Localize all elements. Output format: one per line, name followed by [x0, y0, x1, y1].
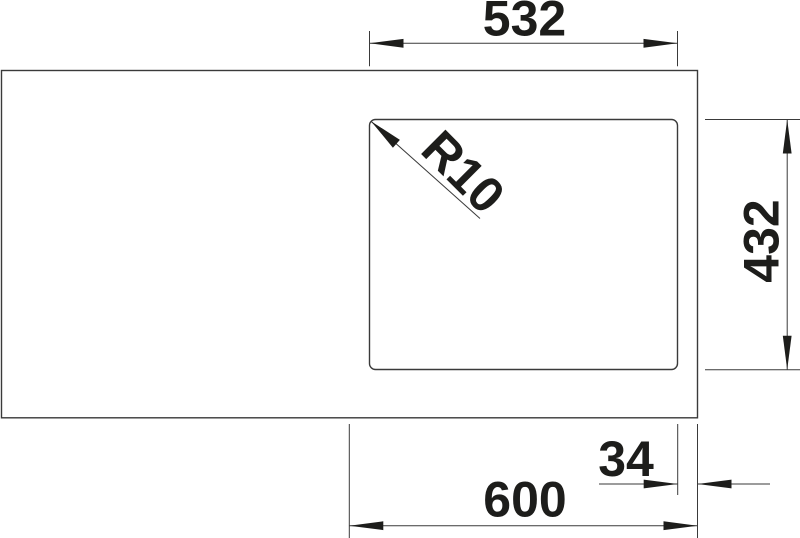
- svg-text:34: 34: [598, 431, 654, 487]
- svg-text:600: 600: [483, 472, 566, 528]
- svg-text:R10: R10: [411, 120, 515, 224]
- svg-text:532: 532: [483, 0, 566, 47]
- svg-text:432: 432: [733, 199, 789, 282]
